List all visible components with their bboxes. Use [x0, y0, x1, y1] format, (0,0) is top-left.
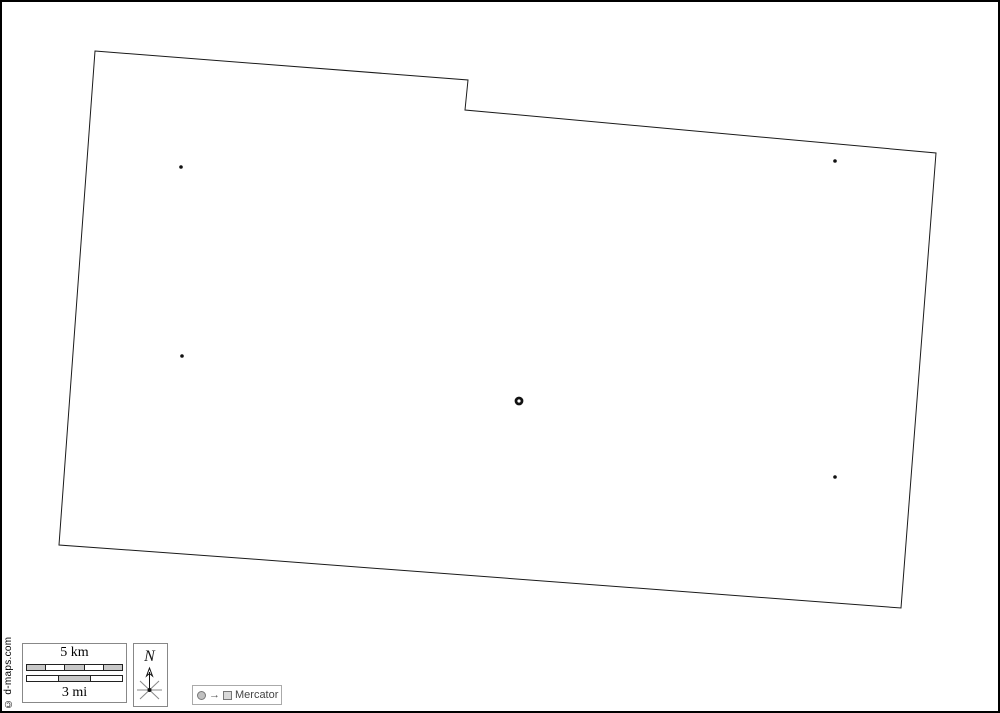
north-arrow-box: N [133, 643, 168, 707]
map-outline-svg [2, 2, 998, 711]
city-dot [833, 475, 837, 479]
sphere-icon [197, 691, 206, 700]
region-outline [59, 51, 936, 608]
city-dot [180, 354, 184, 358]
scale-mi-label: 3 mi [62, 685, 87, 701]
copyright-attribution: © d-maps.com [3, 633, 14, 709]
scale-segment [27, 676, 59, 681]
scale-segment [46, 665, 65, 670]
scale-segment [85, 665, 104, 670]
projection-legend-box: → Mercator [192, 685, 282, 705]
scale-bar-mi [26, 675, 123, 682]
scale-bar-box: 5 km 3 mi [22, 643, 127, 703]
scale-segment [91, 676, 122, 681]
arrow-right-icon: → [209, 690, 220, 701]
projection-name: Mercator [235, 689, 278, 701]
capital-marker [516, 398, 522, 404]
map-canvas: © d-maps.com 5 km 3 mi N → Mercator [0, 0, 1000, 713]
city-dot [179, 165, 183, 169]
north-arrow-icon: N [134, 644, 165, 704]
scale-segment [104, 665, 122, 670]
city-dot [833, 159, 837, 163]
north-label: N [143, 648, 156, 665]
scale-segment [65, 665, 84, 670]
scale-km-label: 5 km [60, 645, 88, 661]
projected-square-icon [223, 691, 232, 700]
scale-segment [59, 676, 91, 681]
scale-bar-km [26, 664, 123, 671]
scale-segment [27, 665, 46, 670]
